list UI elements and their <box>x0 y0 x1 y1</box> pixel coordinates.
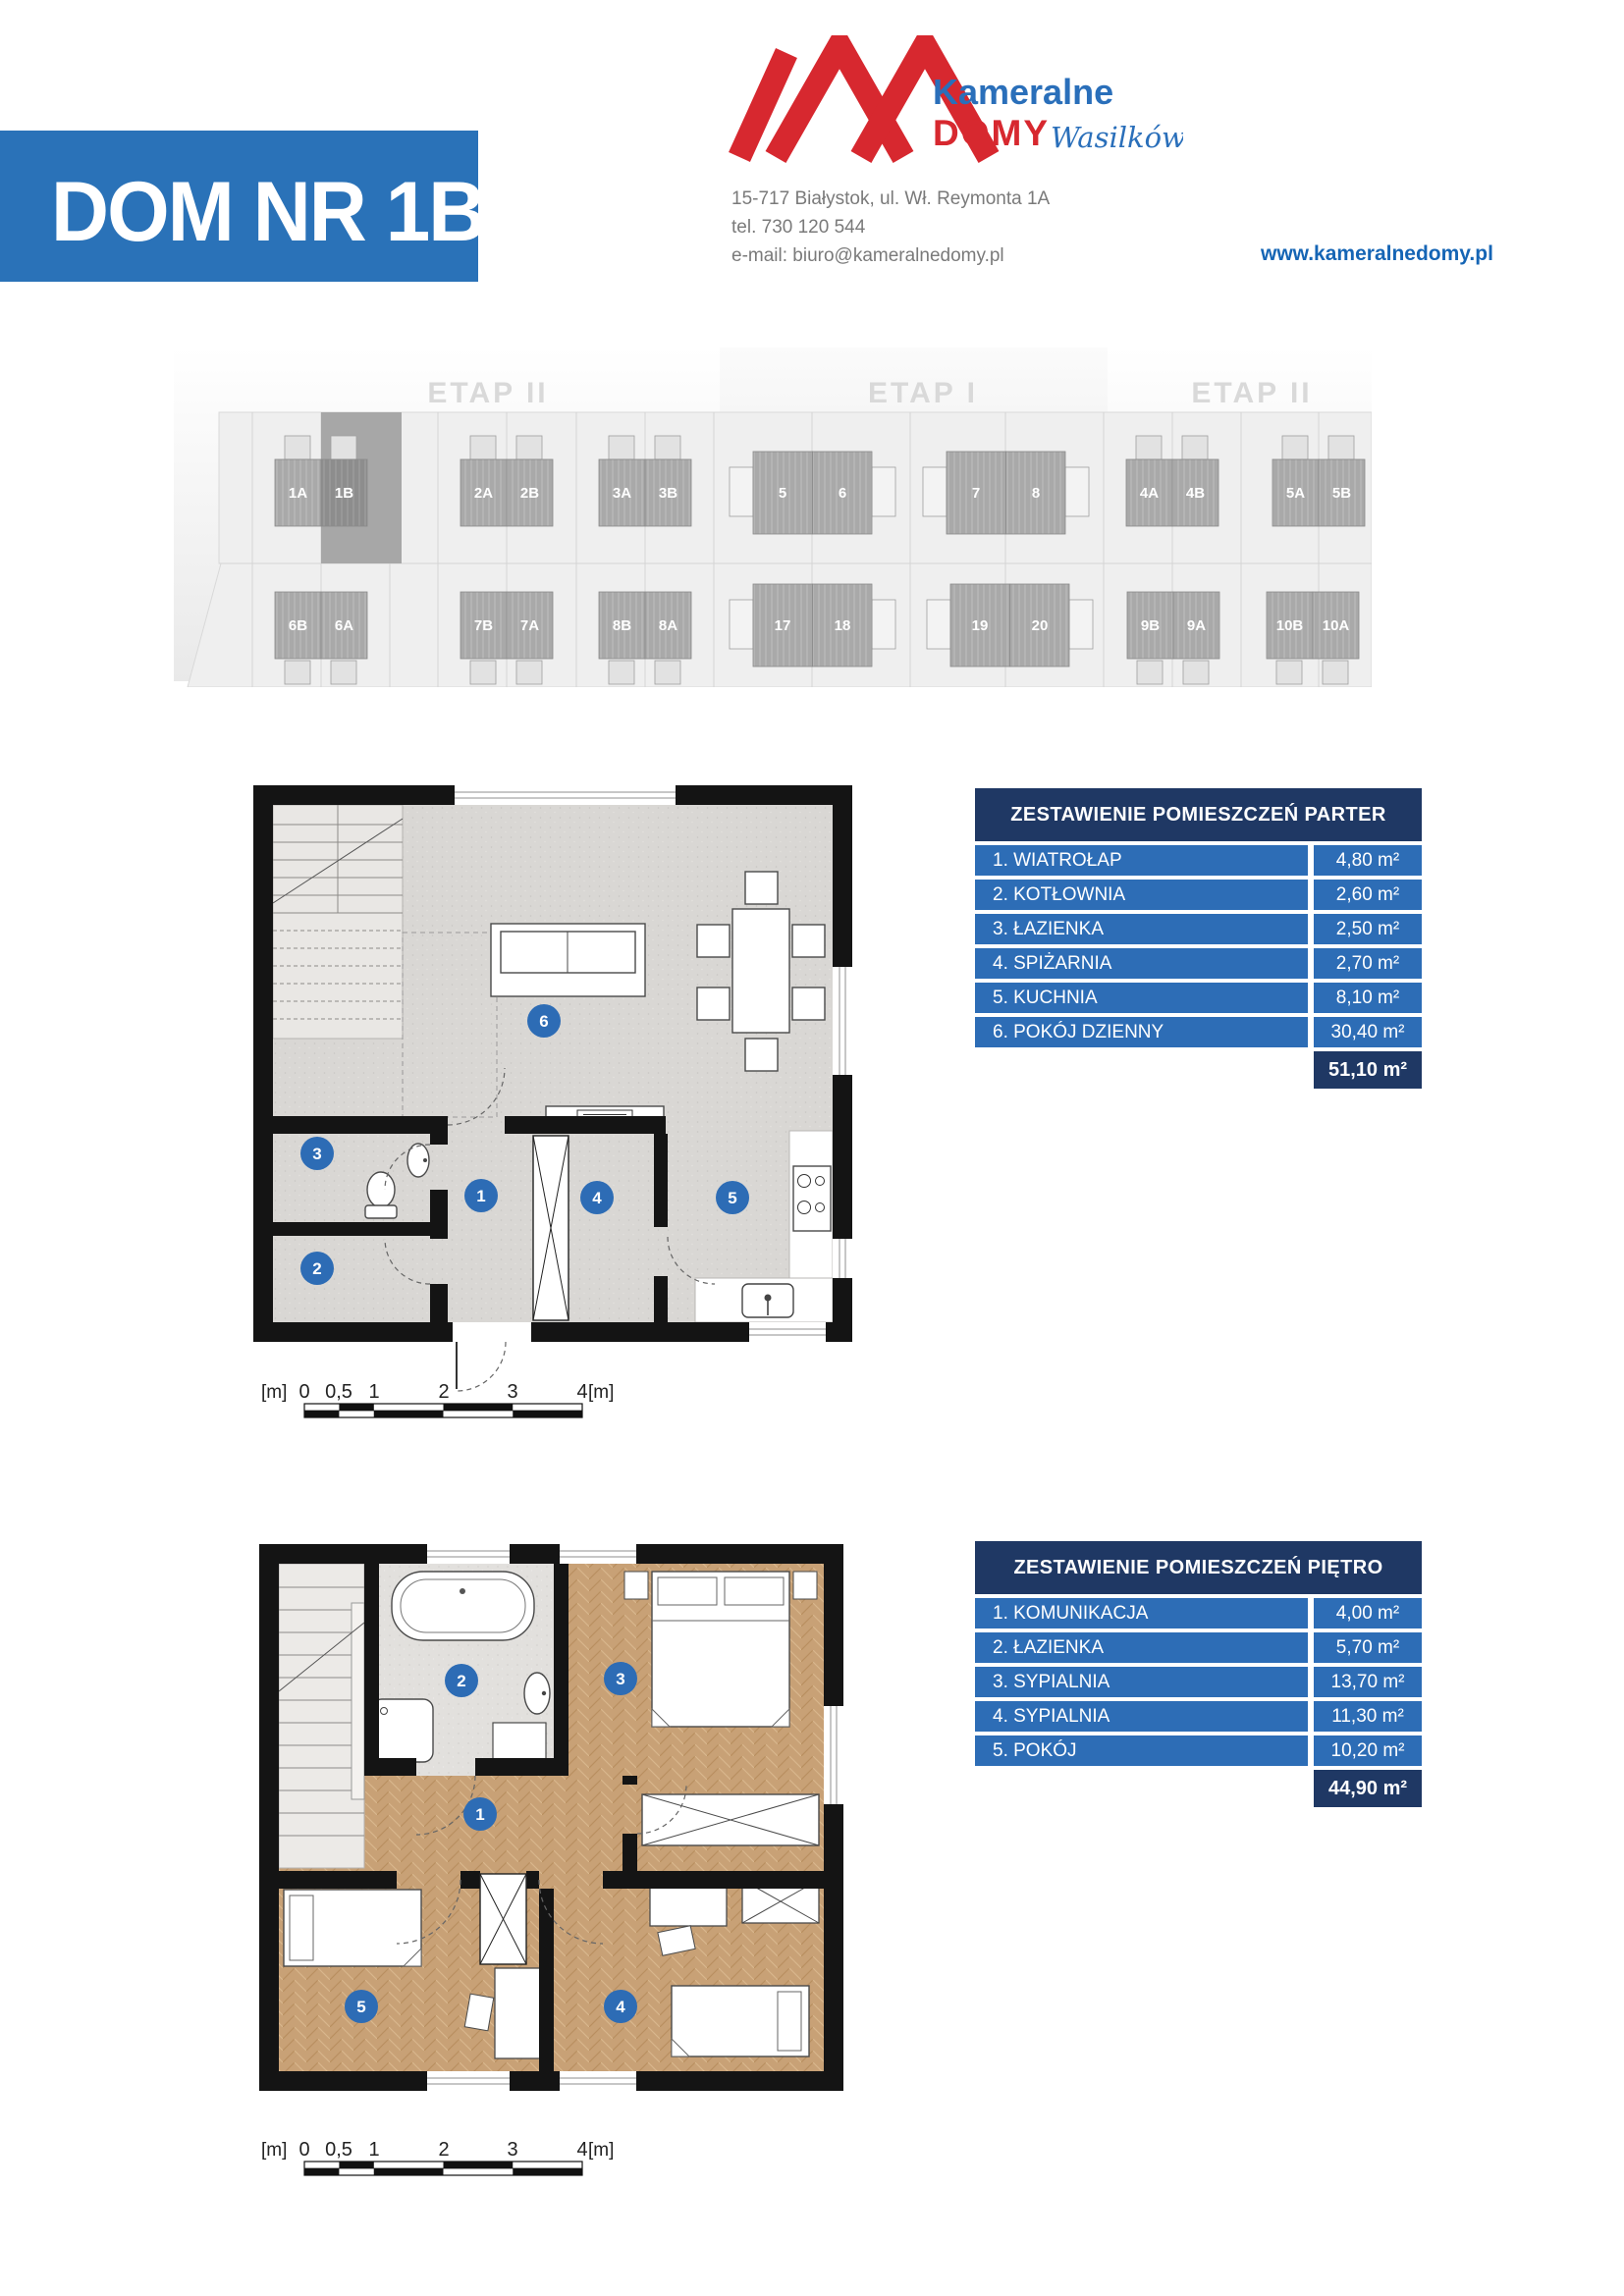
house-label: 7A <box>520 617 539 634</box>
logo-name-script: Wasilków <box>1051 121 1183 154</box>
table-title-pietro: ZESTAWIENIE POMIESZCZEŃ PIĘTRO <box>975 1541 1422 1594</box>
table-row: 1. KOMUNIKACJA 4,00 m² <box>975 1598 1422 1629</box>
scale-bar-graphic <box>304 2162 582 2175</box>
room-number: 5 <box>728 1189 736 1207</box>
room-number: 1 <box>476 1187 485 1205</box>
shower-icon <box>372 1699 433 1762</box>
house-label: 1A <box>289 485 307 502</box>
house-label: 5B <box>1332 485 1351 502</box>
stove-icon <box>793 1166 831 1231</box>
wardrobe-bedroom3 <box>642 1794 819 1845</box>
room-area: 10,20 m² <box>1314 1735 1422 1766</box>
room-area: 8,10 m² <box>1314 983 1422 1013</box>
room-number: 3 <box>616 1670 624 1688</box>
website-link[interactable]: www.kameralnedomy.pl <box>1261 242 1493 266</box>
contact-phone: tel. 730 120 544 <box>731 213 1050 241</box>
area-table-pietro: ZESTAWIENIE POMIESZCZEŃ PIĘTRO 1. KOMUNI… <box>975 1541 1422 1807</box>
etap-label-right: ETAP II <box>1191 377 1312 409</box>
room-area: 30,40 m² <box>1314 1017 1422 1047</box>
table-row: 4. SYPIALNIA 11,30 m² <box>975 1701 1422 1732</box>
scale-tick: 4 <box>576 1381 587 1403</box>
logo-name-bottom: DOMY <box>933 113 1050 153</box>
room-label: 6. POKÓJ DZIENNY <box>975 1017 1308 1047</box>
room-label: 1. KOMUNIKACJA <box>975 1598 1308 1629</box>
bathtub-icon <box>392 1572 534 1640</box>
scale-bar-graphic <box>304 1404 582 1417</box>
scale-tick: 0 <box>298 2139 309 2161</box>
contact-address: 15-717 Białystok, ul. Wł. Reymonta 1A <box>731 185 1050 213</box>
contact-block: 15-717 Białystok, ul. Wł. Reymonta 1A te… <box>731 185 1050 270</box>
house-label: 10B <box>1276 617 1304 634</box>
kitchen-sink-icon <box>742 1284 793 1317</box>
table-row: 4. SPIŻARNIA 2,70 m² <box>975 948 1422 979</box>
house-label: 3B <box>659 485 677 502</box>
room-area: 4,00 m² <box>1314 1598 1422 1629</box>
table-row: 1. WIATROŁAP 4,80 m² <box>975 845 1422 876</box>
floor-plan-pietro: 1 2 3 4 5 <box>258 1544 844 2094</box>
room-number: 2 <box>312 1259 321 1278</box>
title-banner: DOM NR 1B <box>0 131 478 282</box>
sofa <box>491 924 645 996</box>
room-number: 4 <box>592 1189 602 1207</box>
room-area: 2,70 m² <box>1314 948 1422 979</box>
nightstand-right <box>793 1572 817 1599</box>
bath-sink-icon <box>524 1673 550 1714</box>
house-label: 5 <box>779 485 786 502</box>
boiler-door-gap <box>430 1239 448 1284</box>
room-area: 13,70 m² <box>1314 1667 1422 1697</box>
house-label: 6 <box>839 485 846 502</box>
room-area: 5,70 m² <box>1314 1632 1422 1663</box>
area-table-parter: ZESTAWIENIE POMIESZCZEŃ PARTER 1. WIATRO… <box>975 788 1422 1089</box>
single-bed-room4 <box>672 1986 809 2056</box>
room-label: 5. KUCHNIA <box>975 983 1308 1013</box>
house-label: 10A <box>1323 617 1350 634</box>
total-area: 51,10 m² <box>1314 1051 1422 1089</box>
house-label: 7 <box>972 485 980 502</box>
room-number: 5 <box>356 1998 365 2016</box>
house-label: 20 <box>1032 617 1049 634</box>
house-label: 5A <box>1286 485 1305 502</box>
room-label: 2. KOTŁOWNIA <box>975 880 1308 910</box>
table-title-parter: ZESTAWIENIE POMIESZCZEŃ PARTER <box>975 788 1422 841</box>
room-area: 4,80 m² <box>1314 845 1422 876</box>
house-label: 2A <box>474 485 493 502</box>
room-label: 1. WIATROŁAP <box>975 845 1308 876</box>
toilet-icon <box>365 1172 397 1218</box>
house-label: 4A <box>1140 485 1159 502</box>
scale-unit-right: [m] <box>588 1382 614 1403</box>
house-label: 6B <box>289 617 307 634</box>
table-row: 2. KOTŁOWNIA 2,60 m² <box>975 880 1422 910</box>
double-bed <box>652 1572 789 1727</box>
room-area: 2,60 m² <box>1314 880 1422 910</box>
floor-plan-parter: 1 2 3 4 5 6 <box>253 785 852 1423</box>
room-number: 2 <box>457 1672 465 1690</box>
house-label: 2B <box>520 485 539 502</box>
house-label: 8 <box>1032 485 1040 502</box>
room-label: 3. SYPIALNIA <box>975 1667 1308 1697</box>
contact-email: e-mail: biuro@kameralnedomy.pl <box>731 241 1050 270</box>
house-label: 19 <box>972 617 989 634</box>
house-label: 6A <box>335 617 353 634</box>
room-area: 2,50 m² <box>1314 914 1422 944</box>
house-label: 8A <box>659 617 677 634</box>
page-title: DOM NR 1B <box>51 164 484 261</box>
house-label: 9B <box>1141 617 1160 634</box>
house-label: 18 <box>835 617 851 634</box>
staircase-pietro <box>279 1564 364 1868</box>
scale-tick: 3 <box>507 1381 517 1403</box>
etap-label-left: ETAP II <box>427 377 548 409</box>
scale-tick: 2 <box>438 2139 449 2161</box>
scale-tick: 1 <box>368 2139 379 2161</box>
room-area: 11,30 m² <box>1314 1701 1422 1732</box>
table-total-row: 44,90 m² <box>975 1770 1422 1807</box>
table-row: 6. POKÓJ DZIENNY 30,40 m² <box>975 1017 1422 1047</box>
scale-tick: 0,5 <box>325 2139 352 2161</box>
table-row: 5. KUCHNIA 8,10 m² <box>975 983 1422 1013</box>
total-area: 44,90 m² <box>1314 1770 1422 1807</box>
logo-name-top: Kameralne <box>933 72 1113 112</box>
table-row: 3. ŁAZIENKA 2,50 m² <box>975 914 1422 944</box>
company-logo: Kameralne DOMY Wasilków <box>722 35 1183 185</box>
house-label: 1B <box>335 485 353 502</box>
scale-tick: 2 <box>438 1381 449 1403</box>
house-label: 8B <box>613 617 631 634</box>
site-plan: ETAP II ETAP I ETAP II <box>174 347 1372 687</box>
table-row: 3. SYPIALNIA 13,70 m² <box>975 1667 1422 1697</box>
room-number: 3 <box>312 1145 321 1163</box>
scale-unit-left: [m] <box>261 2140 287 2161</box>
scale-tick: 4 <box>576 2139 587 2161</box>
scale-unit-left: [m] <box>261 1382 287 1403</box>
etap-label-mid: ETAP I <box>868 377 978 409</box>
scale-tick: 3 <box>507 2139 517 2161</box>
house-label: 17 <box>775 617 791 634</box>
room-number: 1 <box>475 1805 484 1824</box>
house-label: 7B <box>474 617 493 634</box>
table-row: 5. POKÓJ 10,20 m² <box>975 1735 1422 1766</box>
scale-tick: 0 <box>298 1381 309 1403</box>
scale-tick: 0,5 <box>325 1381 352 1403</box>
room-label: 2. ŁAZIENKA <box>975 1632 1308 1663</box>
scale-unit-right: [m] <box>588 2140 614 2161</box>
table-row: 2. ŁAZIENKA 5,70 m² <box>975 1632 1422 1663</box>
room-number: 4 <box>616 1998 625 2016</box>
single-bed-room5 <box>284 1890 421 1966</box>
house-label: 3A <box>613 485 631 502</box>
room-label: 5. POKÓJ <box>975 1735 1308 1766</box>
nightstand-left <box>624 1572 648 1599</box>
brochure-page: DOM NR 1B Kameralne DOMY Wasilków 15-717… <box>0 0 1624 2296</box>
bath-door-gap <box>430 1145 448 1190</box>
scale-bar-pietro: [m] 0 0,5 1 2 3 4 [m] <box>261 2132 634 2181</box>
room-label: 4. SYPIALNIA <box>975 1701 1308 1732</box>
scale-bar-parter: [m] 0 0,5 1 2 3 4 [m] <box>261 1374 634 1423</box>
room-number: 6 <box>539 1012 548 1031</box>
room-label: 4. SPIŻARNIA <box>975 948 1308 979</box>
closet-hall-pietro <box>480 1874 526 1964</box>
hall-wardrobe <box>533 1136 568 1320</box>
scale-tick: 1 <box>368 1381 379 1403</box>
table-total-row: 51,10 m² <box>975 1051 1422 1089</box>
house-label: 4B <box>1186 485 1205 502</box>
house-label: 9A <box>1187 617 1206 634</box>
room-label: 3. ŁAZIENKA <box>975 914 1308 944</box>
